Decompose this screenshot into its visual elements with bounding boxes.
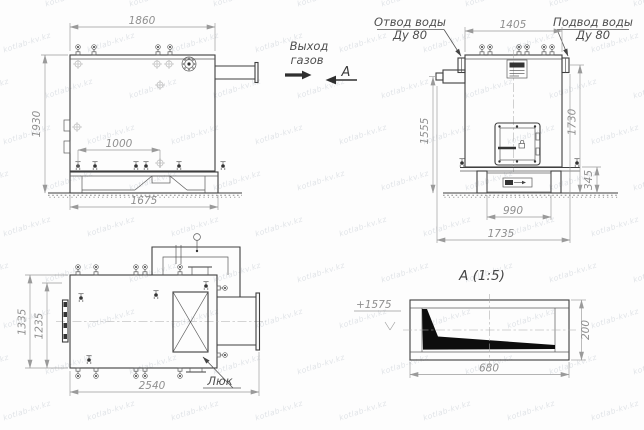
drain-valve-icon: [143, 162, 148, 170]
section-wedge-fill: [422, 309, 555, 350]
svg-text:345: 345: [583, 170, 595, 190]
valve-icon: [178, 265, 183, 275]
svg-text:1235: 1235: [34, 312, 46, 339]
svg-text:200: 200: [580, 320, 592, 340]
dim-width-1235: 1235: [34, 283, 63, 368]
dim-frame-345: 345: [582, 167, 601, 193]
front-view: Отвод воды Ду 80 Подвод воды Ду 80 1405: [374, 15, 633, 243]
valve-icon: [92, 45, 97, 55]
door-hinge: [64, 120, 70, 131]
svg-text:1335: 1335: [17, 308, 29, 335]
support-frame-front: [460, 168, 580, 194]
svg-text:1555: 1555: [419, 117, 431, 144]
dim-height-1930: 1930: [31, 55, 68, 193]
drain-valve-icon: [153, 291, 158, 299]
dim-depth-1735: 1735: [437, 74, 570, 243]
svg-text:газов: газов: [290, 53, 323, 67]
safety-valve-icon: [194, 234, 201, 241]
svg-text:А: А: [341, 65, 351, 80]
valve-icon: [76, 265, 81, 275]
gas-flow-arrow-icon: [285, 71, 312, 80]
valve-icon: [168, 45, 173, 55]
valve-icon: [542, 45, 547, 55]
boiler-technical-drawing: 1860 1930 1000 1675 Выход г: [0, 0, 644, 430]
crosshair-mark: [152, 59, 162, 69]
dim-height-1555: 1555: [419, 77, 435, 194]
ground-hatch: [443, 193, 618, 197]
hatch-label: Люк: [203, 357, 241, 388]
drain-valve-icon: [78, 294, 83, 302]
ash-door: [505, 180, 513, 185]
door-strip-plan: [63, 300, 69, 342]
svg-text:1735: 1735: [488, 228, 515, 240]
svg-text:1860: 1860: [129, 15, 156, 27]
drain-valve-icon: [92, 162, 97, 170]
water-inlet-flange: [562, 58, 569, 73]
valve-icon: [134, 265, 139, 275]
boiler-body-side: [70, 55, 215, 171]
drain-valve-icon: [459, 159, 464, 167]
svg-text:Выход: Выход: [290, 39, 329, 53]
svg-text:1675: 1675: [131, 195, 158, 207]
valve-icon: [217, 286, 227, 291]
gas-outlet-pipe: [215, 63, 258, 83]
valve-icon: [76, 368, 81, 378]
valve-icon: [143, 368, 148, 378]
svg-text:1405: 1405: [500, 19, 527, 31]
burner-stub: [436, 70, 465, 83]
svg-text:990: 990: [503, 205, 523, 217]
drain-valve-icon: [220, 162, 225, 170]
svg-text:1930: 1930: [31, 110, 43, 137]
svg-text:Люк: Люк: [206, 374, 232, 388]
water-outlet-label: Отвод воды Ду 80: [374, 15, 461, 56]
valve-icon: [178, 368, 183, 378]
plan-view: Люк 1335 1235 2540: [17, 234, 267, 396]
valve-icon: [94, 265, 99, 275]
svg-text:Отвод воды: Отвод воды: [374, 15, 446, 29]
valve-icon: [134, 368, 139, 378]
dim-frame-990: 990: [487, 195, 551, 220]
svg-text:680: 680: [479, 363, 499, 375]
valve-icon: [525, 45, 530, 55]
flue-duct-plan: [152, 234, 240, 297]
valve-icon: [156, 45, 161, 55]
gas-outlet-annotation: Выход газов: [285, 39, 328, 79]
svg-text:Ду 80: Ду 80: [575, 28, 610, 42]
dim-width-1860: 1860: [70, 15, 215, 51]
dim-height-1730: 1730: [567, 65, 585, 193]
drain-valve-icon: [86, 356, 91, 364]
drain-valve-icon: [176, 162, 181, 170]
crosshair-mark: [164, 59, 174, 69]
crosshair-mark: [72, 122, 82, 132]
svg-text:Подвод воды: Подвод воды: [553, 15, 633, 29]
valve-icon: [488, 45, 493, 55]
elevation-mark: +1575: [354, 299, 401, 330]
dim-spacing-1000: 1000: [78, 138, 160, 168]
support-frame-side: [70, 172, 218, 193]
svg-text:1000: 1000: [106, 138, 133, 150]
hatch-box: [173, 292, 208, 352]
valve-icon: [517, 45, 522, 55]
nameplate: [507, 60, 527, 78]
valve-icon: [217, 353, 227, 358]
drain-valve-icon: [203, 282, 208, 290]
water-inlet-label: Подвод воды Ду 80: [553, 15, 633, 56]
valve-icon: [143, 265, 148, 275]
dim-base-1675: 1675: [70, 195, 218, 210]
valve-icon: [480, 45, 485, 55]
valve-icon: [76, 45, 81, 55]
dim-section-680: 680: [410, 362, 569, 378]
crosshair-mark: [155, 80, 165, 90]
section-arrow-icon: [326, 76, 337, 85]
section-view-a: А (1:5) +1575 680: [354, 268, 592, 378]
svg-text:Ду 80: Ду 80: [392, 28, 427, 42]
door-hinge: [536, 133, 540, 140]
flange-port-icon: [182, 57, 196, 71]
section-title: А (1:5): [458, 268, 505, 284]
door-hinge: [64, 141, 70, 153]
valve-icon: [94, 368, 99, 378]
svg-text:1730: 1730: [567, 108, 579, 135]
lock-icon: [519, 144, 525, 149]
side-view: 1860 1930 1000 1675: [31, 15, 258, 210]
section-cut-marker: А: [326, 65, 358, 84]
valve-icon: [550, 45, 555, 55]
svg-text:2540: 2540: [139, 380, 166, 392]
svg-text:+1575: +1575: [356, 299, 392, 311]
furnace-door: [495, 123, 540, 165]
drain-valve-icon: [574, 159, 579, 167]
crosshair-mark: [73, 59, 83, 69]
drain-valve-icon: [133, 162, 138, 170]
drawing-canvas: kotlab-kv.kzkotlab-kv.kzkotlab-kv.kzkotl…: [0, 0, 644, 430]
door-hinge: [536, 148, 540, 155]
